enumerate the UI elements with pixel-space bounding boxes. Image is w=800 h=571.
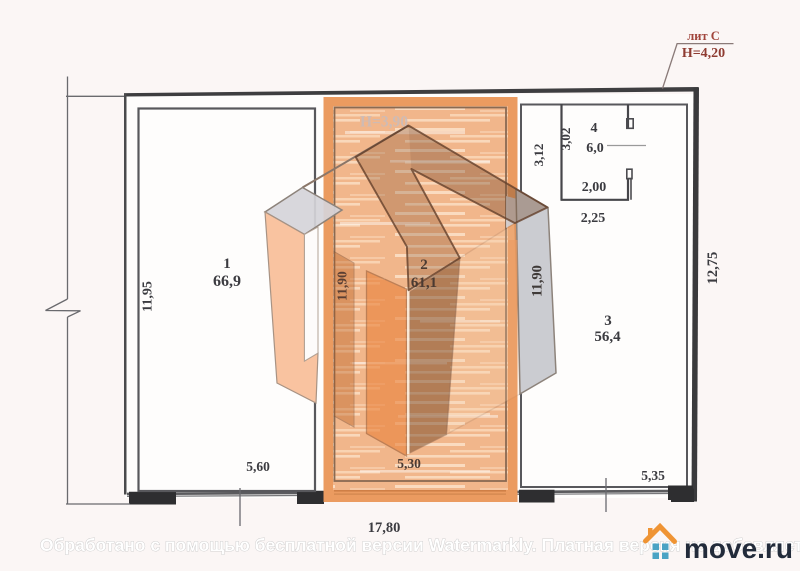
svg-text:11,90: 11,90 [335,271,350,301]
svg-text:3,02: 3,02 [558,128,573,151]
svg-text:56,4: 56,4 [594,329,621,345]
svg-text:4: 4 [591,121,598,136]
svg-text:12,75: 12,75 [705,252,721,285]
svg-text:3: 3 [604,313,612,329]
svg-text:66,9: 66,9 [213,273,241,290]
svg-text:5,60: 5,60 [246,459,270,474]
svg-text:11,90: 11,90 [530,265,546,297]
svg-text:11,95: 11,95 [141,281,156,312]
svg-text:лит С: лит С [687,29,720,43]
svg-text:5,35: 5,35 [641,468,665,483]
svg-text:3,12: 3,12 [531,144,546,167]
svg-text:Н=4,20: Н=4,20 [682,46,725,61]
svg-text:2: 2 [420,257,428,273]
svg-text:move.ru: move.ru [684,533,793,564]
svg-text:1: 1 [223,256,231,272]
svg-text:Н=3,90: Н=3,90 [360,114,408,131]
svg-text:61,1: 61,1 [411,275,437,291]
svg-text:17,80: 17,80 [368,520,401,536]
svg-text:2,25: 2,25 [581,211,606,226]
svg-text:6,0: 6,0 [586,141,604,156]
svg-text:2,00: 2,00 [582,180,607,195]
svg-text:5,30: 5,30 [397,456,421,471]
